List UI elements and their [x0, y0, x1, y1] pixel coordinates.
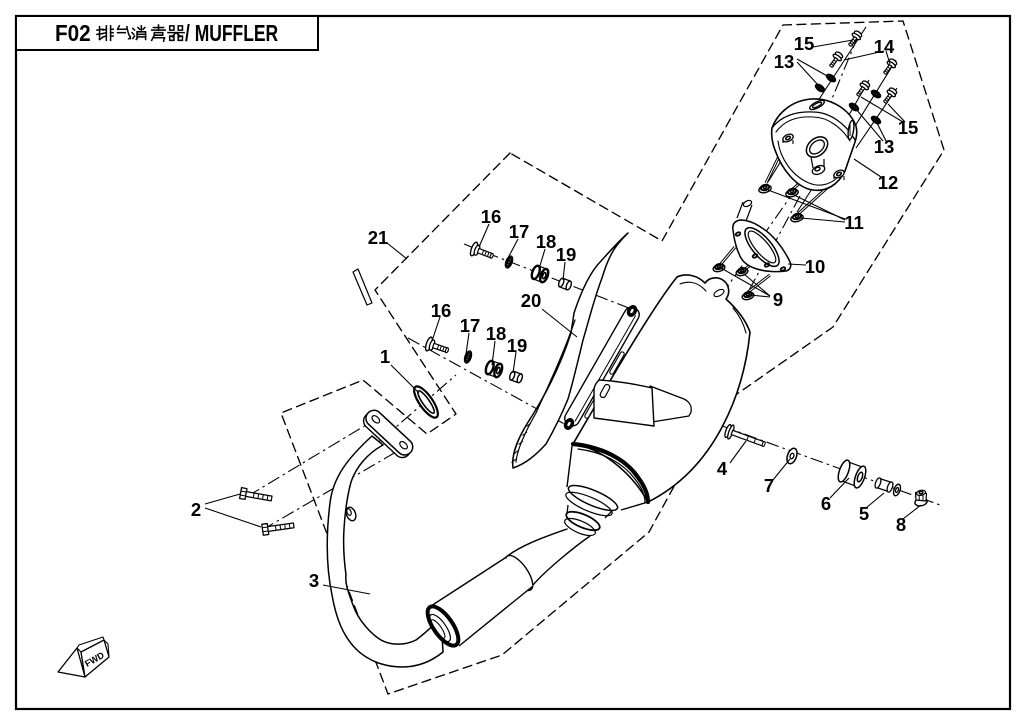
svg-text:9: 9	[773, 289, 783, 310]
svg-text:F02: F02	[55, 20, 91, 46]
svg-text:18: 18	[536, 231, 557, 252]
svg-text:14: 14	[874, 36, 895, 57]
svg-text:21: 21	[368, 227, 389, 248]
svg-text:17: 17	[509, 221, 530, 242]
svg-text:11: 11	[844, 212, 864, 233]
svg-text:15: 15	[898, 117, 919, 138]
svg-text:5: 5	[859, 503, 869, 524]
svg-text:10: 10	[805, 256, 826, 277]
svg-text:3: 3	[309, 570, 319, 591]
svg-text:19: 19	[507, 335, 528, 356]
svg-text:17: 17	[460, 315, 481, 336]
svg-text:16: 16	[431, 300, 452, 321]
svg-text:15: 15	[794, 33, 815, 54]
svg-text:18: 18	[486, 323, 507, 344]
svg-text:4: 4	[717, 458, 728, 479]
svg-text:13: 13	[874, 136, 895, 157]
svg-text:13: 13	[774, 51, 795, 72]
svg-text:16: 16	[481, 206, 502, 227]
svg-text:1: 1	[380, 346, 390, 367]
svg-text:20: 20	[521, 290, 542, 311]
svg-text:8: 8	[896, 514, 906, 535]
svg-text:19: 19	[556, 244, 577, 265]
svg-text:12: 12	[878, 172, 899, 193]
svg-text:7: 7	[764, 475, 774, 496]
svg-text:6: 6	[821, 493, 831, 514]
svg-text:/ MUFFLER: / MUFFLER	[185, 22, 278, 47]
svg-text:2: 2	[191, 499, 201, 520]
